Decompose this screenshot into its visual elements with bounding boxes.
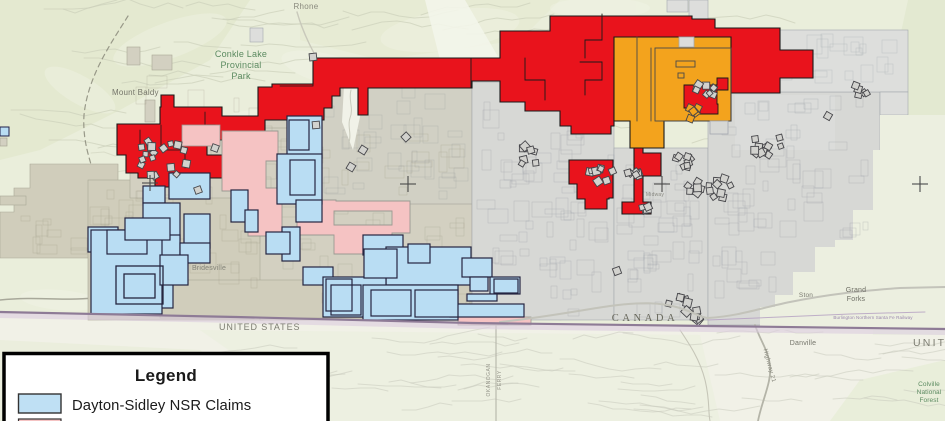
svg-text:UNITE: UNITE	[913, 337, 945, 349]
svg-text:National: National	[917, 389, 942, 396]
svg-text:Dayton-Sidley NSR Claims: Dayton-Sidley NSR Claims	[72, 398, 251, 414]
svg-text:Grand: Grand	[846, 287, 866, 294]
svg-text:Rhone: Rhone	[293, 2, 318, 11]
svg-text:Forks: Forks	[847, 296, 866, 303]
svg-text:Burlington Northern Santa Fe R: Burlington Northern Santa Fe Railway	[833, 315, 913, 320]
svg-text:Danville: Danville	[790, 340, 817, 347]
svg-text:Mount Baldy: Mount Baldy	[112, 88, 159, 97]
svg-text:Legend: Legend	[135, 366, 197, 385]
svg-text:CANADA: CANADA	[612, 313, 679, 324]
svg-text:Park: Park	[231, 71, 251, 81]
svg-text:Ston: Ston	[799, 292, 813, 299]
svg-text:Forest: Forest	[919, 397, 938, 404]
svg-text:Colville: Colville	[918, 381, 940, 388]
svg-text:OKANOGAN: OKANOGAN	[486, 364, 492, 397]
svg-text:FERRY: FERRY	[497, 370, 503, 390]
svg-text:Midway: Midway	[646, 192, 664, 198]
svg-text:Conkle Lake: Conkle Lake	[215, 49, 267, 59]
svg-text:UNITED STATES: UNITED STATES	[219, 322, 300, 332]
svg-text:Bridesville: Bridesville	[192, 265, 226, 272]
svg-text:Provincial: Provincial	[220, 60, 261, 70]
